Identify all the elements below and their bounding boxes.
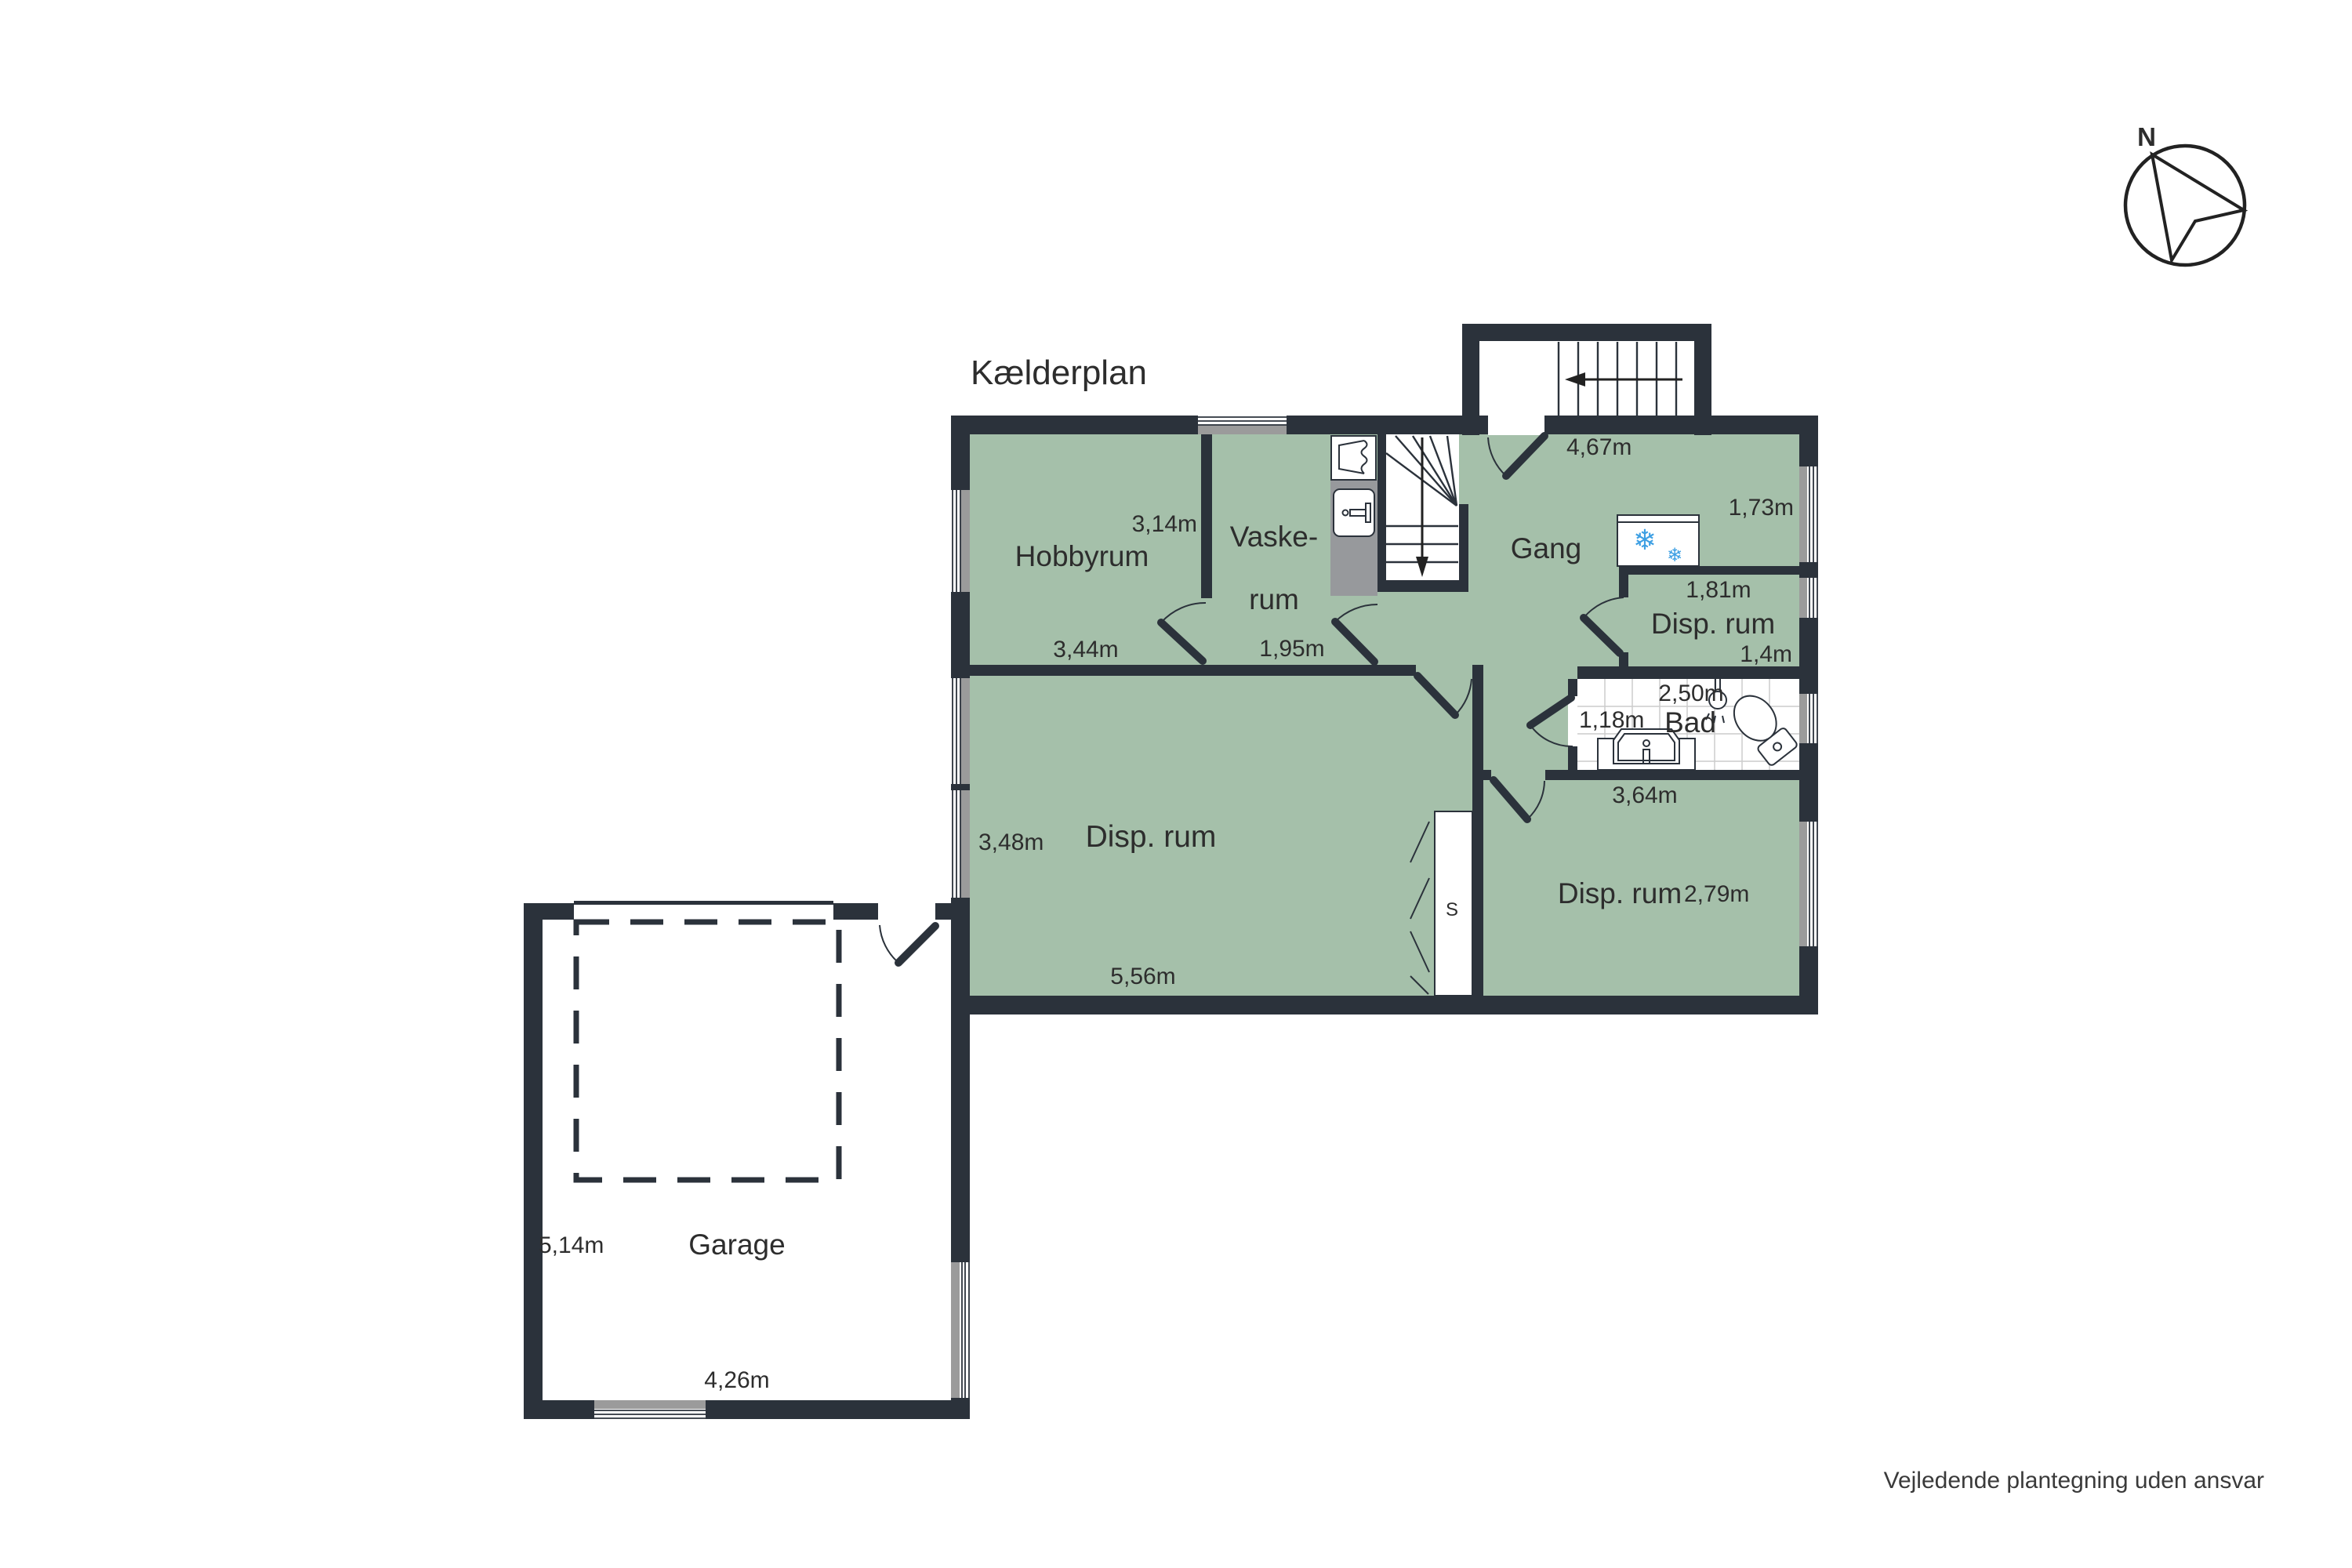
garage-wall-bottom: [524, 1400, 970, 1419]
dim-hobbyrum-height: 3,14m: [1132, 511, 1197, 537]
room-label-dispbottom: Disp. rum: [1558, 877, 1682, 909]
wall-bad-left-top: [1568, 679, 1577, 696]
room-label-garage: Garage: [688, 1229, 785, 1261]
window-hobbyrum: [951, 490, 970, 592]
opening-dispsmall: [1619, 597, 1628, 652]
dim-bad-width: 2,50m: [1658, 681, 1723, 706]
vaskerum-fixtures: [1330, 436, 1377, 596]
stairblock-wall-right: [1459, 504, 1468, 592]
wall-bottom: [951, 996, 1818, 1014]
room-label-vaskerum-line1: Vaske-: [1230, 521, 1318, 553]
dim-dispbig-height: 3,48m: [978, 829, 1044, 855]
dim-dispsmall-depth: 1,4m: [1740, 641, 1792, 667]
room-label-hobbyrum: Hobbyrum: [1015, 540, 1149, 572]
compass-rose: N: [2125, 122, 2245, 265]
dim-gang-width: 4,67m: [1566, 434, 1632, 460]
window-gang: [1799, 466, 1818, 562]
room-label-dispbig: Disp. rum: [1086, 820, 1217, 854]
room-label-bad: Bad: [1664, 706, 1716, 739]
floor-plan-svg: ❄ ❄: [0, 0, 2352, 1568]
wall-bad-left-bottom: [1568, 746, 1577, 770]
compass-circle: [2125, 146, 2245, 265]
wall-hobbyrum-vaskerum: [1201, 434, 1212, 598]
room-label-dispsmall: Disp. rum: [1651, 608, 1775, 640]
dim-garage-height: 5,14m: [539, 1232, 604, 1258]
closet-label: S: [1446, 899, 1458, 920]
wall-center-vertical: [1472, 665, 1483, 996]
dim-garage-width: 4,26m: [704, 1367, 769, 1393]
compass-north-label: N: [2137, 122, 2156, 151]
wall-corridor-bottom-left: [1472, 770, 1491, 780]
window-dispbig-upper: [951, 678, 970, 786]
snowflake-small-icon: ❄: [1667, 544, 1682, 566]
dim-hobbyrum-width: 3,44m: [1053, 637, 1118, 662]
garage-wall-left: [524, 903, 543, 1419]
stairblock-wall-bottom: [1377, 580, 1468, 592]
door-garage: [880, 925, 935, 963]
disclaimer-text: Vejledende plantegning uden ansvar: [1884, 1468, 2264, 1494]
dim-gang-depth: 1,73m: [1729, 495, 1794, 521]
room-label-vaskerum-line2: rum: [1249, 583, 1299, 615]
wall-bad-bottom: [1545, 770, 1818, 780]
wall-under-hobbyrum: [970, 665, 1472, 676]
garage-dashed-area: [576, 922, 839, 1180]
garage-walls: [524, 901, 970, 1419]
snowflake-large-icon: ❄: [1633, 524, 1657, 557]
dim-vaskerum-width: 1,95m: [1259, 636, 1324, 662]
laundry-faucet-handle: [1366, 503, 1370, 522]
opening-stairwell-gang: [1488, 416, 1544, 435]
wall-bad-top: [1577, 666, 1799, 679]
stairblock-wall-left: [1377, 434, 1386, 592]
opening-dispbig: [1416, 665, 1472, 676]
dim-dispbottom-depth: 2,79m: [1684, 881, 1749, 907]
window-garage-bottom: [594, 1400, 706, 1419]
garage-wall-top-mid: [833, 903, 878, 920]
window-bad: [1799, 694, 1818, 743]
interior-staircase: [1386, 434, 1459, 580]
window-dispbig-lower: [951, 790, 970, 898]
wall-top: [951, 416, 1818, 434]
dim-bad-left: 1,18m: [1579, 707, 1644, 733]
garage-wall-top-right: [935, 903, 953, 920]
window-garage-right: [951, 1262, 970, 1398]
stairwell-wall-top: [1462, 324, 1711, 341]
room-label-gang: Gang: [1511, 532, 1582, 564]
floor-plan-page: ❄ ❄: [0, 0, 2352, 1568]
dim-dispbottom-width: 3,64m: [1612, 782, 1677, 808]
window-vaskerum: [1198, 416, 1287, 434]
freezer: ❄ ❄: [1617, 515, 1699, 566]
garage-wall-top-left: [524, 903, 574, 920]
wall-dispsmall-left-top: [1619, 575, 1628, 597]
window-dispsmall: [1799, 578, 1818, 618]
opening-bad: [1568, 696, 1577, 746]
garage-door-opening-line: [574, 901, 833, 905]
opening-hobbyrum: [1201, 598, 1212, 665]
opening-dispbottom: [1491, 770, 1545, 780]
dim-dispbig-width: 5,56m: [1110, 964, 1175, 989]
page-title: Kælderplan: [971, 354, 1147, 392]
window-dispbottom: [1799, 822, 1818, 946]
window-mullion: [951, 784, 970, 790]
dim-dispsmall-width: 1,81m: [1686, 577, 1751, 603]
wall-gang-dispsmall: [1619, 566, 1799, 575]
